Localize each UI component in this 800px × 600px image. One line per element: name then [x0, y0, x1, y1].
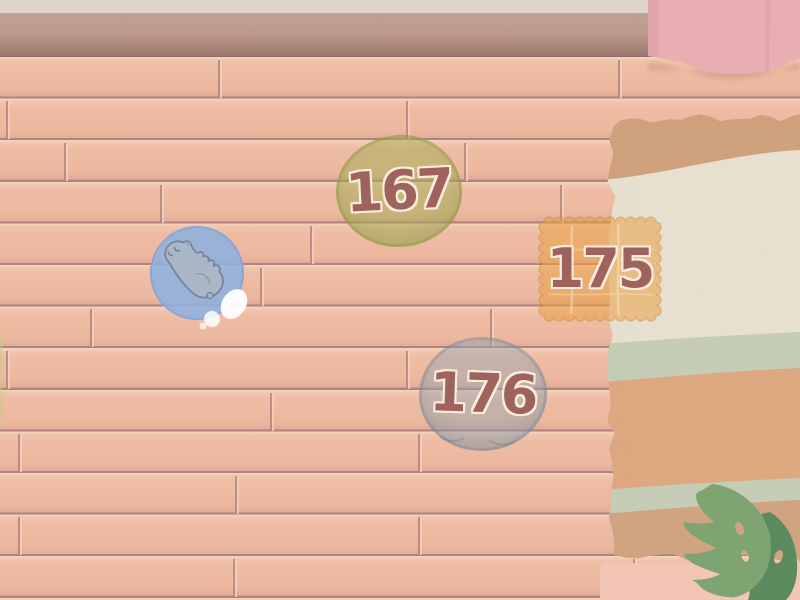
plank-joint [618, 60, 622, 98]
plank-joint [235, 476, 239, 514]
plank-joint [160, 185, 164, 223]
plank-joint [64, 143, 68, 181]
game-scene: 167 175 176 [0, 0, 800, 600]
curtain [644, 0, 800, 84]
offscreen-item-edge [0, 332, 3, 424]
item-count-label: 176 [429, 365, 538, 423]
curtain-fold-left [648, 0, 658, 57]
plank-joint [90, 309, 94, 347]
square-cracker-mat[interactable]: 175 [536, 214, 664, 324]
monstera-leaf-light [684, 484, 771, 597]
plank-joint [18, 517, 22, 555]
plank-joint [270, 393, 274, 431]
curtain-fabric [648, 0, 800, 74]
plank-joint [260, 268, 264, 306]
plank-joint [464, 143, 468, 181]
hamster-bubble[interactable] [146, 224, 256, 334]
plank-joint [6, 351, 10, 389]
monstera-plant [652, 466, 800, 600]
plank-joint [233, 559, 237, 597]
item-count-label: 175 [547, 242, 654, 296]
plank-joint [406, 101, 410, 139]
item-count-label: 167 [344, 161, 453, 221]
plank-joint [418, 434, 422, 472]
small-bubble [204, 311, 220, 327]
tiny-bubble [200, 323, 207, 330]
plank-joint [6, 101, 10, 139]
plank-joint [310, 226, 314, 264]
plank-joint [18, 434, 22, 472]
plank-joint [218, 60, 222, 98]
plank-joint [406, 351, 410, 389]
plank-joint [418, 517, 422, 555]
